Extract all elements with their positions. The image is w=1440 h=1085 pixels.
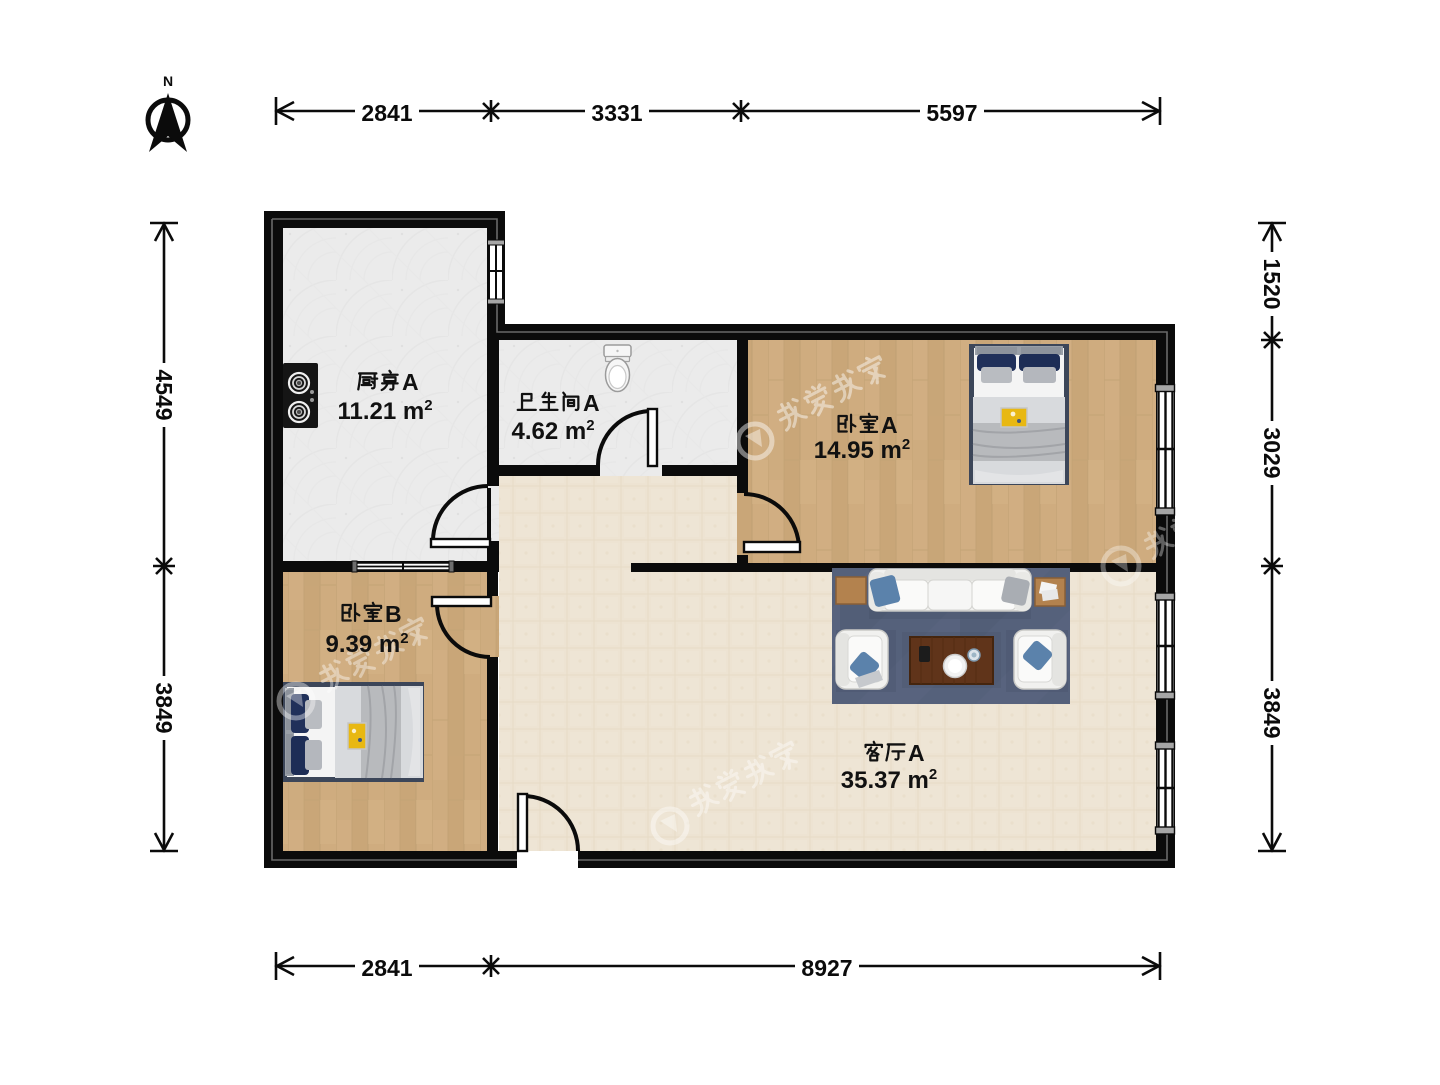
svg-text:3029: 3029 [1259,427,1285,478]
svg-text:5597: 5597 [926,100,977,126]
svg-text:A: A [583,390,600,416]
svg-text:1520: 1520 [1259,258,1285,309]
svg-text:3849: 3849 [1259,687,1285,738]
svg-text:35.37 m2: 35.37 m2 [841,766,937,794]
svg-text:2841: 2841 [361,100,412,126]
svg-text:14.95 m2: 14.95 m2 [814,436,910,464]
svg-text:N: N [163,73,173,89]
svg-text:4549: 4549 [151,369,177,420]
svg-text:A: A [908,740,925,766]
svg-text:8927: 8927 [801,955,852,981]
svg-text:B: B [385,601,402,627]
svg-text:A: A [402,369,419,395]
svg-text:3849: 3849 [151,682,177,733]
svg-text:4.62 m2: 4.62 m2 [511,417,594,445]
svg-text:2841: 2841 [361,955,412,981]
svg-text:3331: 3331 [591,100,642,126]
svg-text:11.21 m2: 11.21 m2 [337,397,432,425]
svg-text:A: A [881,412,898,438]
svg-text:9.39 m2: 9.39 m2 [325,630,408,658]
